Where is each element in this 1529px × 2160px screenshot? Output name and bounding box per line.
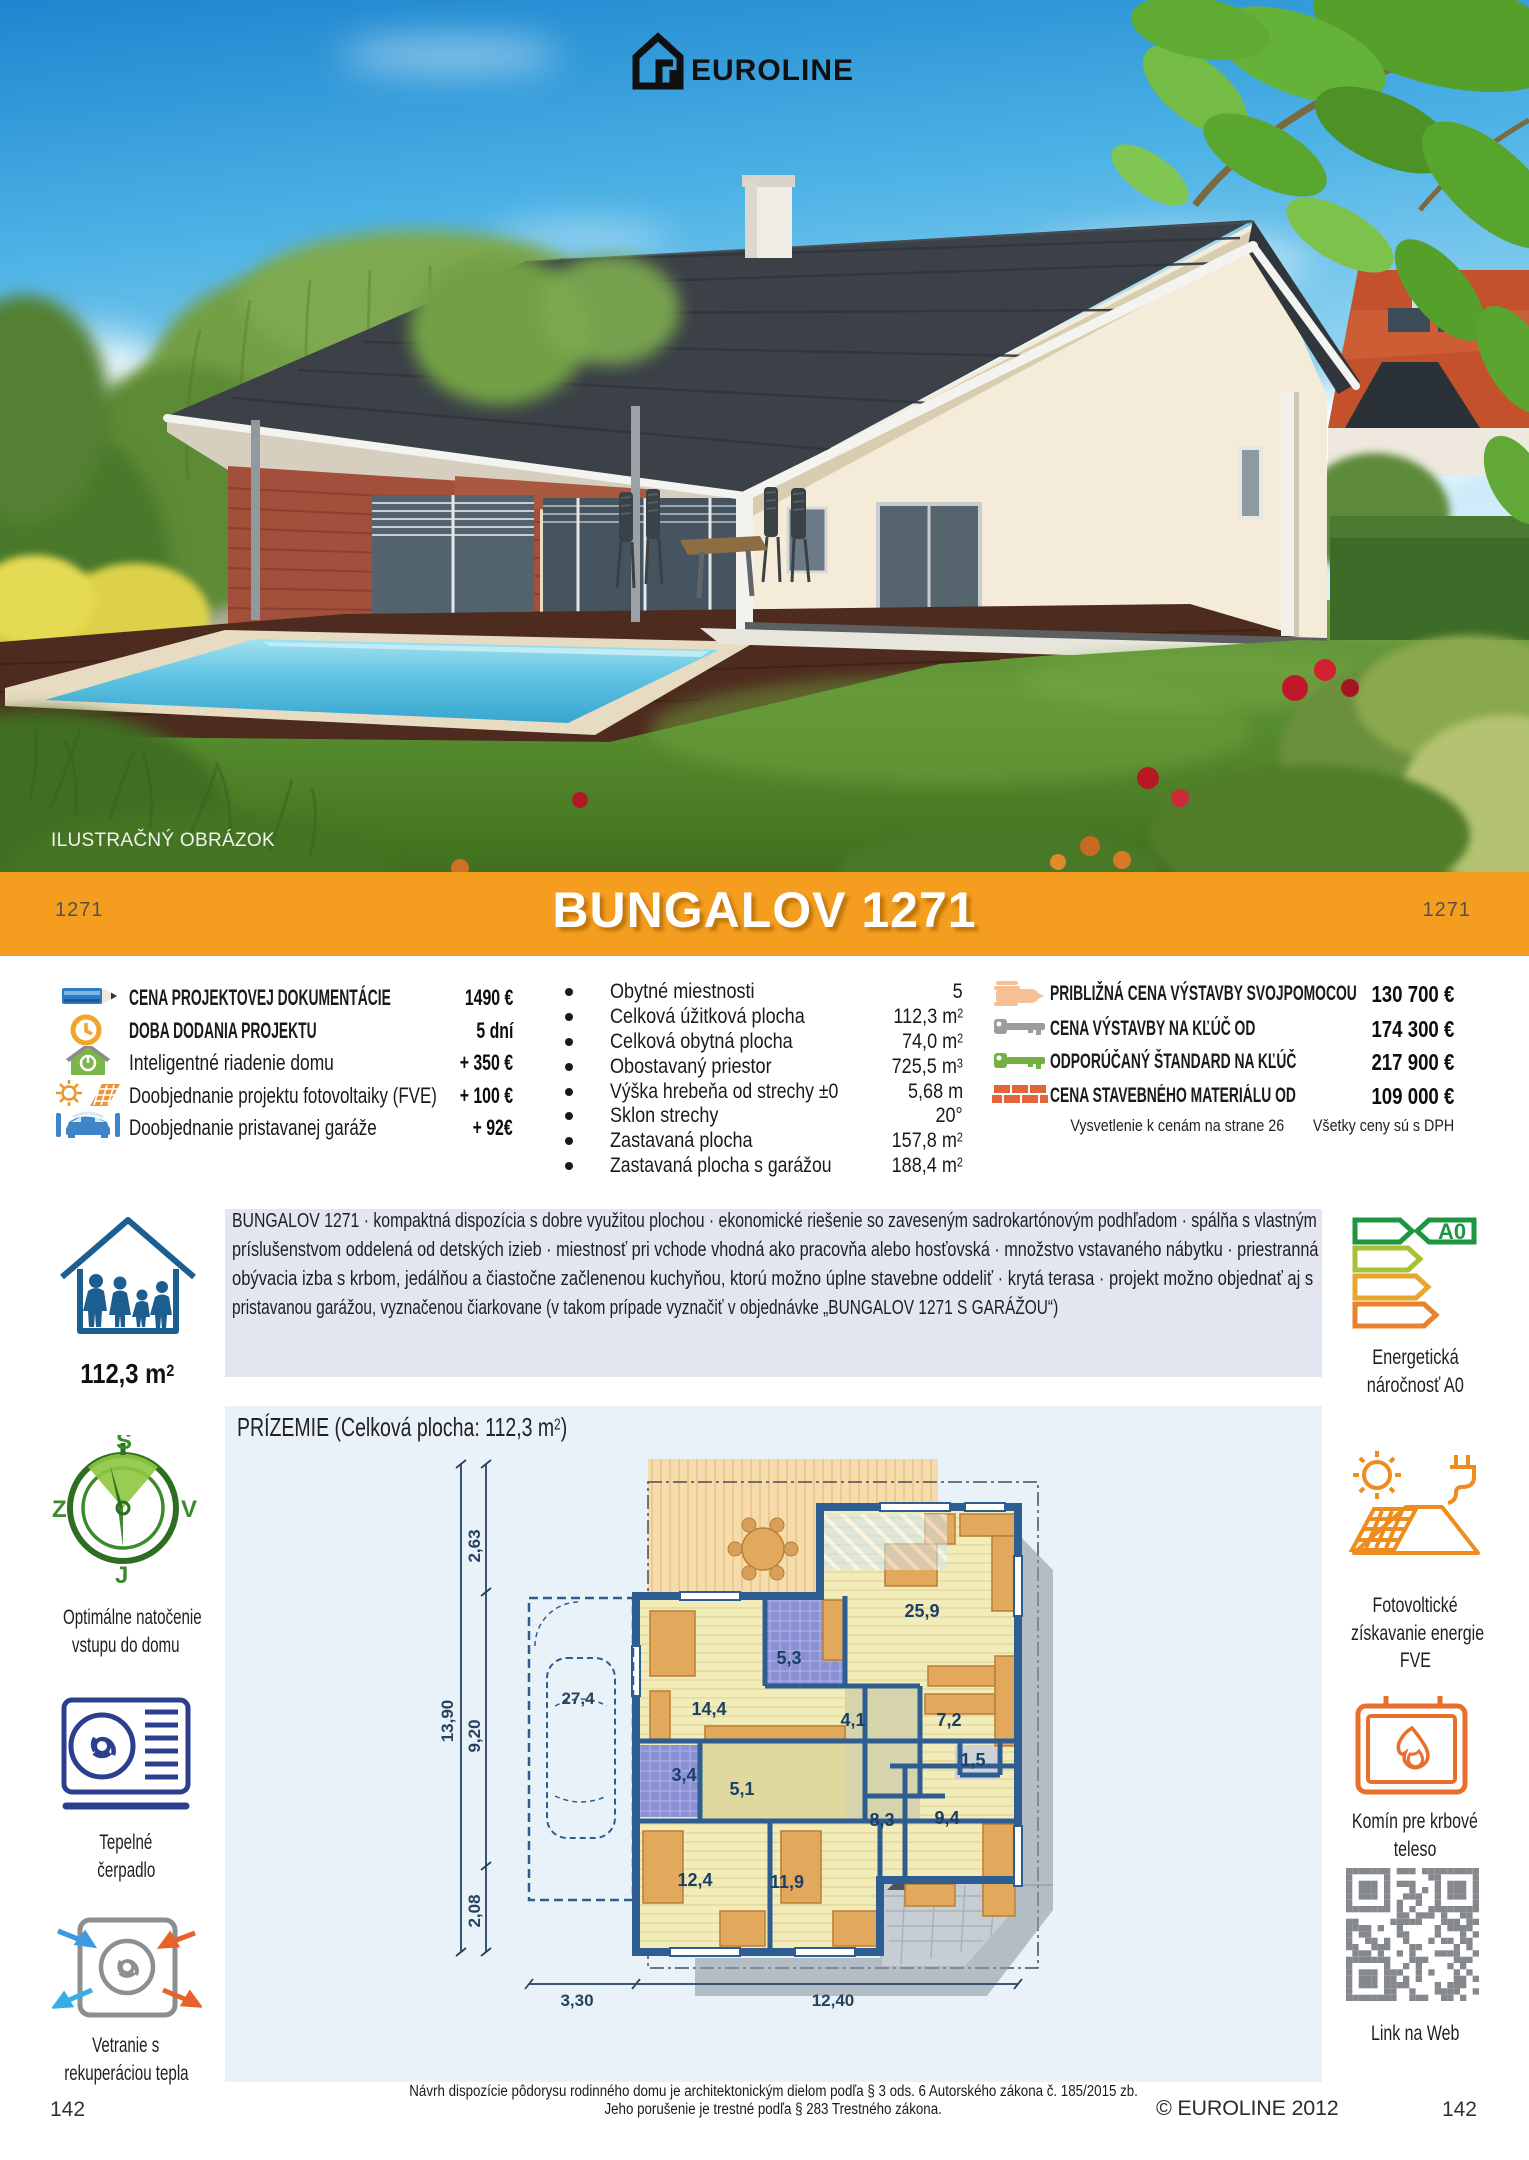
svg-text:12,40: 12,40 — [812, 1991, 855, 2010]
svg-text:3,4: 3,4 — [671, 1765, 696, 1785]
svg-text:7,2: 7,2 — [936, 1710, 961, 1730]
svg-text:9,20: 9,20 — [465, 1719, 484, 1752]
svg-text:25,9: 25,9 — [904, 1601, 939, 1621]
svg-text:12,4: 12,4 — [677, 1870, 712, 1890]
svg-text:J: J — [115, 1562, 128, 1585]
svg-text:2,63: 2,63 — [465, 1529, 484, 1562]
svg-text:5,3: 5,3 — [776, 1648, 801, 1668]
svg-text:S: S — [116, 1435, 132, 1455]
svg-text:27,4: 27,4 — [561, 1689, 595, 1708]
svg-text:5,1: 5,1 — [729, 1779, 754, 1799]
svg-text:Z: Z — [52, 1496, 67, 1523]
svg-text:11,9: 11,9 — [770, 1872, 804, 1892]
svg-text:3,30: 3,30 — [560, 1991, 593, 2010]
svg-text:1,5: 1,5 — [960, 1750, 985, 1770]
svg-text:EUROLINE: EUROLINE — [691, 54, 854, 87]
svg-text:14,4: 14,4 — [691, 1699, 726, 1719]
svg-text:9,4: 9,4 — [934, 1808, 959, 1828]
svg-text:13,90: 13,90 — [438, 1700, 457, 1743]
svg-text:A0: A0 — [1438, 1219, 1466, 1244]
svg-text:V: V — [181, 1496, 197, 1523]
svg-text:4,1: 4,1 — [840, 1710, 865, 1730]
svg-text:8,3: 8,3 — [869, 1810, 894, 1830]
svg-text:2,08: 2,08 — [465, 1894, 484, 1927]
